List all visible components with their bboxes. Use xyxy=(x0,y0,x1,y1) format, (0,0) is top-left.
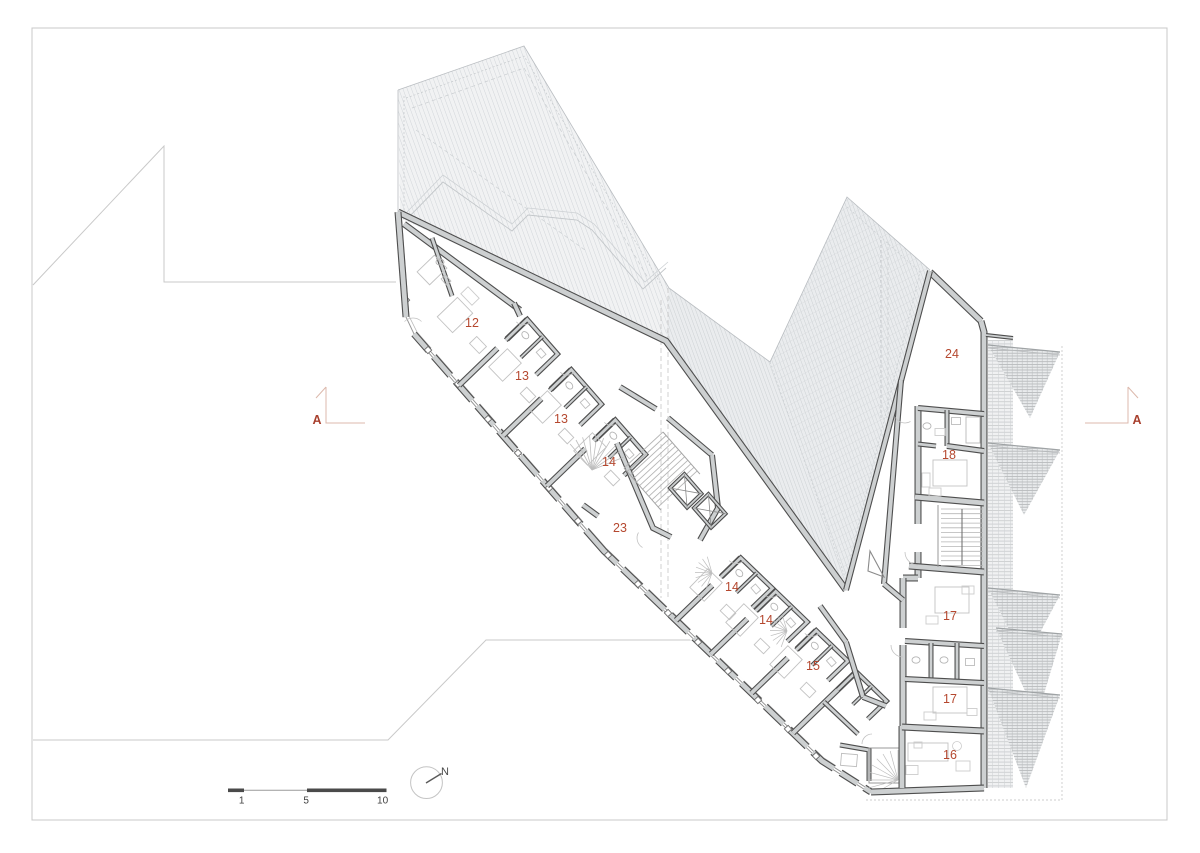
svg-text:24: 24 xyxy=(945,347,959,361)
svg-text:23: 23 xyxy=(613,521,627,535)
svg-text:1: 1 xyxy=(239,796,245,807)
svg-text:13: 13 xyxy=(515,369,529,383)
svg-text:A: A xyxy=(312,413,321,427)
svg-text:17: 17 xyxy=(943,692,957,706)
svg-text:13: 13 xyxy=(554,412,568,426)
svg-text:5: 5 xyxy=(303,796,309,807)
svg-text:12: 12 xyxy=(465,316,479,330)
svg-text:14: 14 xyxy=(602,455,616,469)
svg-text:14: 14 xyxy=(759,613,773,627)
svg-text:10: 10 xyxy=(377,796,389,807)
svg-text:N: N xyxy=(441,766,449,778)
svg-text:16: 16 xyxy=(943,748,957,762)
svg-text:14: 14 xyxy=(725,580,739,594)
svg-text:18: 18 xyxy=(942,448,956,462)
svg-text:A: A xyxy=(1132,413,1141,427)
svg-text:17: 17 xyxy=(943,609,957,623)
svg-text:15: 15 xyxy=(806,659,820,673)
